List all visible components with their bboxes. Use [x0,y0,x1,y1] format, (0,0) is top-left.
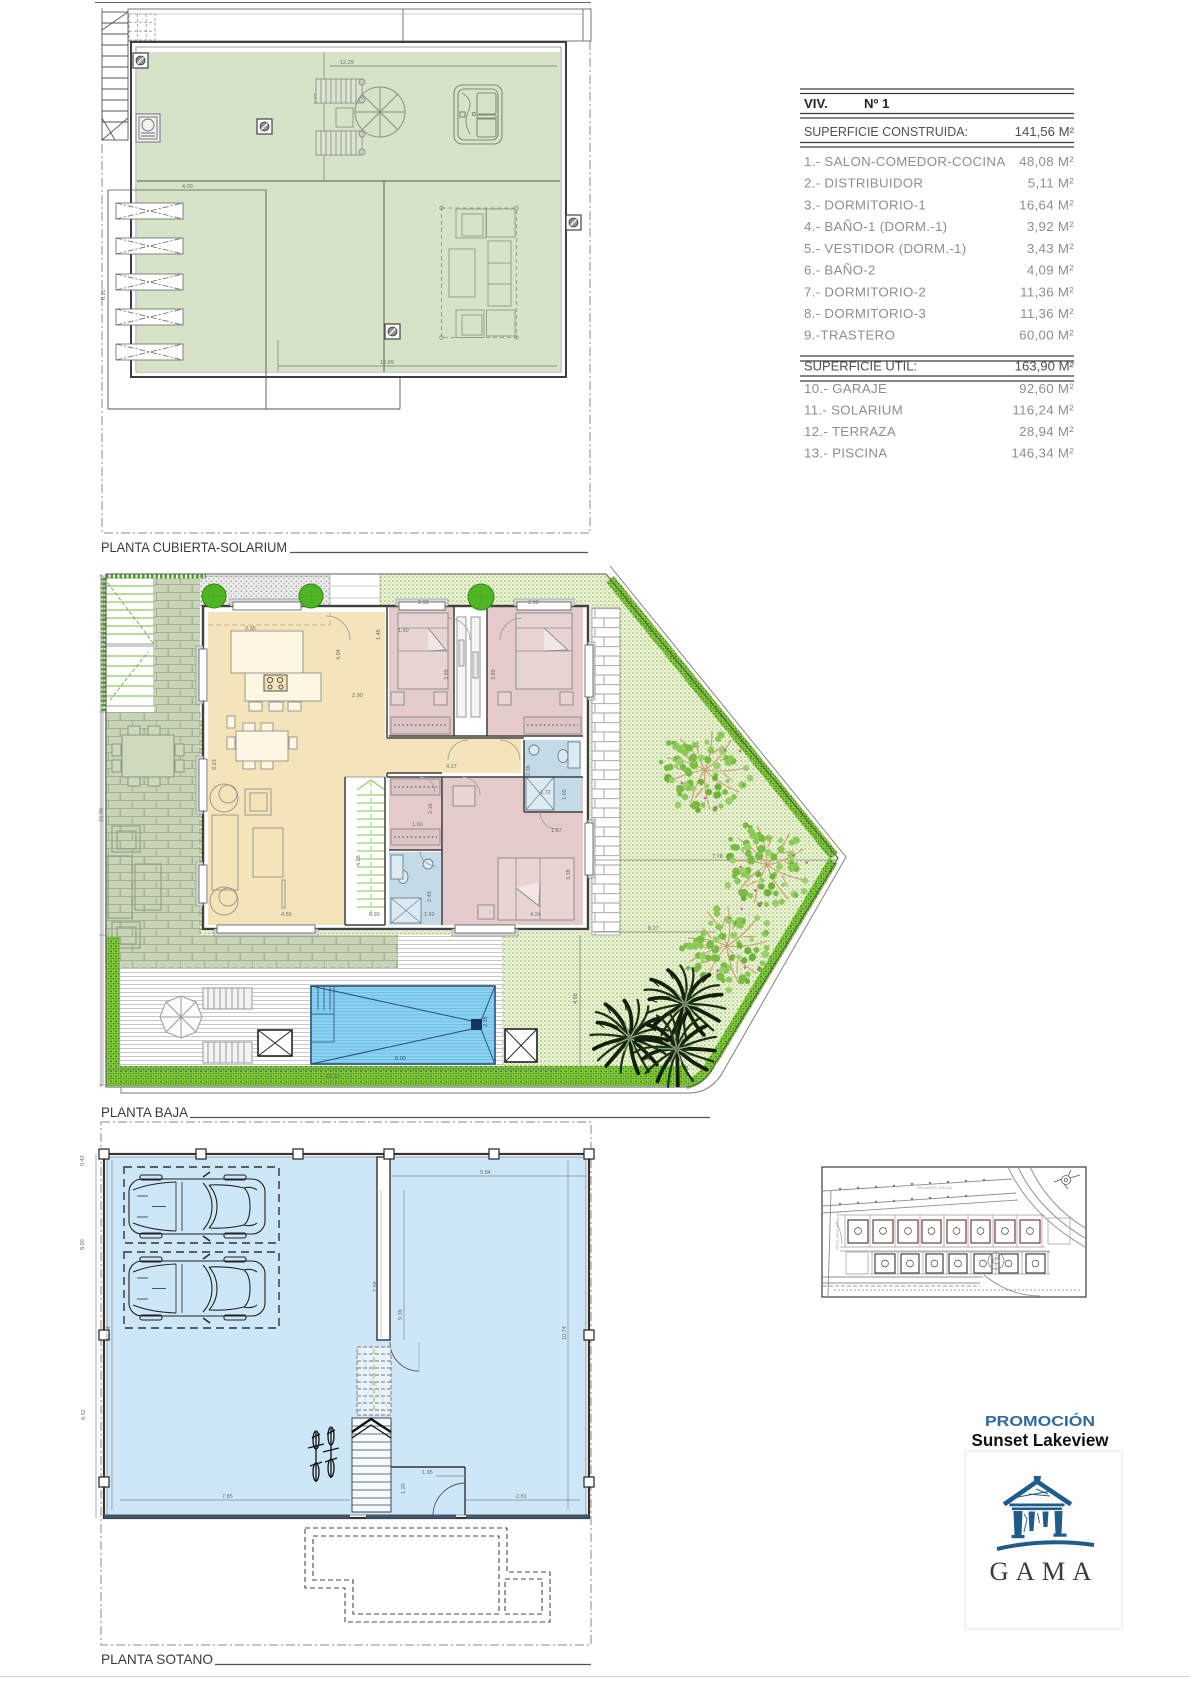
svg-text:48,08 M²: 48,08 M² [1019,154,1074,169]
svg-text:16,64 M²: 16,64 M² [1019,197,1074,212]
svg-text:1.20: 1.20 [401,1483,407,1494]
svg-text:10.89: 10.89 [380,360,394,366]
svg-text:8.27: 8.27 [648,926,659,932]
svg-text:8.- DORMITORIO-3: 8.- DORMITORIO-3 [804,306,926,321]
svg-text:6.95: 6.95 [101,289,107,300]
svg-text:1.72: 1.72 [540,790,551,796]
svg-text:Sunset Lakeview: Sunset Lakeview [972,1430,1109,1450]
svg-text:3.89: 3.89 [491,669,497,680]
svg-text:1.87: 1.87 [551,828,562,834]
svg-text:7.85: 7.85 [222,1494,233,1500]
svg-text:0.90: 0.90 [369,912,380,918]
svg-text:12.29: 12.29 [340,60,354,66]
svg-text:2.81: 2.81 [516,1494,527,1500]
svg-text:2.92: 2.92 [418,600,429,606]
svg-text:4.04: 4.04 [336,649,342,660]
svg-text:Nº 1: Nº 1 [864,96,889,111]
svg-text:9.39: 9.39 [398,1309,404,1320]
svg-text:28,94 M²: 28,94 M² [1019,424,1074,439]
svg-text:6.00: 6.00 [395,1056,406,1062]
svg-text:141,56 M²: 141,56 M² [1015,124,1075,139]
svg-text:13.- PISCINA: 13.- PISCINA [804,446,887,461]
svg-text:2.92: 2.92 [528,600,539,606]
svg-text:1.60: 1.60 [412,822,423,828]
svg-text:11.- SOLARIUM: 11.- SOLARIUM [804,403,903,418]
svg-text:2.35: 2.35 [483,1016,489,1027]
svg-text:1.50: 1.50 [398,628,409,634]
svg-text:1.46: 1.46 [376,629,382,640]
svg-text:18.22: 18.22 [326,1074,340,1080]
svg-text:7.78: 7.78 [712,854,723,860]
svg-text:92,60 M²: 92,60 M² [1019,381,1074,396]
svg-text:15.90: 15.90 [99,808,105,822]
svg-text:2.45: 2.45 [427,891,433,902]
svg-text:10.74: 10.74 [562,1326,568,1340]
svg-text:10.74: 10.74 [106,1326,112,1340]
svg-text:2.90: 2.90 [352,693,363,699]
svg-text:SUPERFICIE CONSTRUIDA:: SUPERFICIE CONSTRUIDA: [804,124,968,139]
svg-text:9.23: 9.23 [212,759,218,770]
svg-text:9.-TRASTERO: 9.-TRASTERO [804,328,895,343]
svg-text:4.24: 4.24 [530,912,541,918]
svg-text:2.16: 2.16 [428,803,434,814]
svg-text:12.- TERRAZA: 12.- TERRAZA [804,424,896,439]
svg-text:8.00: 8.00 [80,1239,86,1250]
svg-text:4.17: 4.17 [446,764,457,770]
svg-text:11,36 M²: 11,36 M² [1020,284,1074,299]
svg-text:PLANTA BAJA: PLANTA BAJA [101,1104,189,1120]
svg-text:VIAL NORTE (CALLE): VIAL NORTE (CALLE) [917,1186,952,1190]
svg-text:7.- DORMITORIO-2: 7.- DORMITORIO-2 [804,284,926,299]
svg-text:0.42: 0.42 [80,1155,86,1166]
svg-text:1.- SALON-COMEDOR-COCINA: 1.- SALON-COMEDOR-COCINA [804,154,1006,169]
svg-text:3,92 M²: 3,92 M² [1027,219,1074,234]
svg-text:2.36: 2.36 [526,765,532,776]
svg-text:7.88: 7.88 [373,1281,379,1292]
svg-text:2.- DISTRIBUIDOR: 2.- DISTRIBUIDOR [804,176,923,191]
svg-text:6.- BAÑO-2: 6.- BAÑO-2 [804,263,876,278]
svg-text:4.65: 4.65 [573,993,579,1004]
svg-text:3.89: 3.89 [444,669,450,680]
svg-text:4.- BAÑO-1 (DORM.-1): 4.- BAÑO-1 (DORM.-1) [804,219,947,234]
svg-text:5.84: 5.84 [480,1170,491,1176]
svg-text:5,11 M²: 5,11 M² [1028,176,1074,191]
svg-text:SUPERFICIE UTIL:: SUPERFICIE UTIL: [804,359,917,374]
svg-text:11,36 M²: 11,36 M² [1020,306,1074,321]
svg-text:PROMOCIÓN: PROMOCIÓN [985,1412,1095,1430]
svg-text:60,00 M²: 60,00 M² [1019,328,1074,343]
svg-text:4.28: 4.28 [356,855,362,866]
svg-text:4,09 M²: 4,09 M² [1027,263,1074,278]
svg-text:PLANTA SOTANO: PLANTA SOTANO [101,1651,213,1667]
svg-text:146,34 M²: 146,34 M² [1011,446,1074,461]
svg-text:1.52: 1.52 [424,912,435,918]
svg-text:3.38: 3.38 [566,869,572,880]
svg-text:5.- VESTIDOR (DORM.-1): 5.- VESTIDOR (DORM.-1) [804,241,966,256]
svg-text:4.55: 4.55 [281,912,292,918]
svg-text:VIV.: VIV. [804,96,828,111]
svg-text:PLANTA CUBIERTA-SOLARIUM: PLANTA CUBIERTA-SOLARIUM [101,539,287,555]
svg-text:116,24 M²: 116,24 M² [1012,403,1074,418]
svg-text:3,43 M²: 3,43 M² [1027,241,1074,256]
svg-text:2.35: 2.35 [245,626,256,632]
svg-text:4.00: 4.00 [182,184,193,190]
svg-text:10.- GARAJE: 10.- GARAJE [804,381,887,396]
svg-text:1.95: 1.95 [422,1470,433,1476]
svg-text:6.52: 6.52 [81,1409,87,1420]
svg-text:1.05: 1.05 [562,789,568,800]
svg-text:3.- DORMITORIO-1: 3.- DORMITORIO-1 [804,197,926,212]
svg-text:GAMA: GAMA [990,1556,1099,1586]
svg-text:163,90 M²: 163,90 M² [1015,359,1075,374]
